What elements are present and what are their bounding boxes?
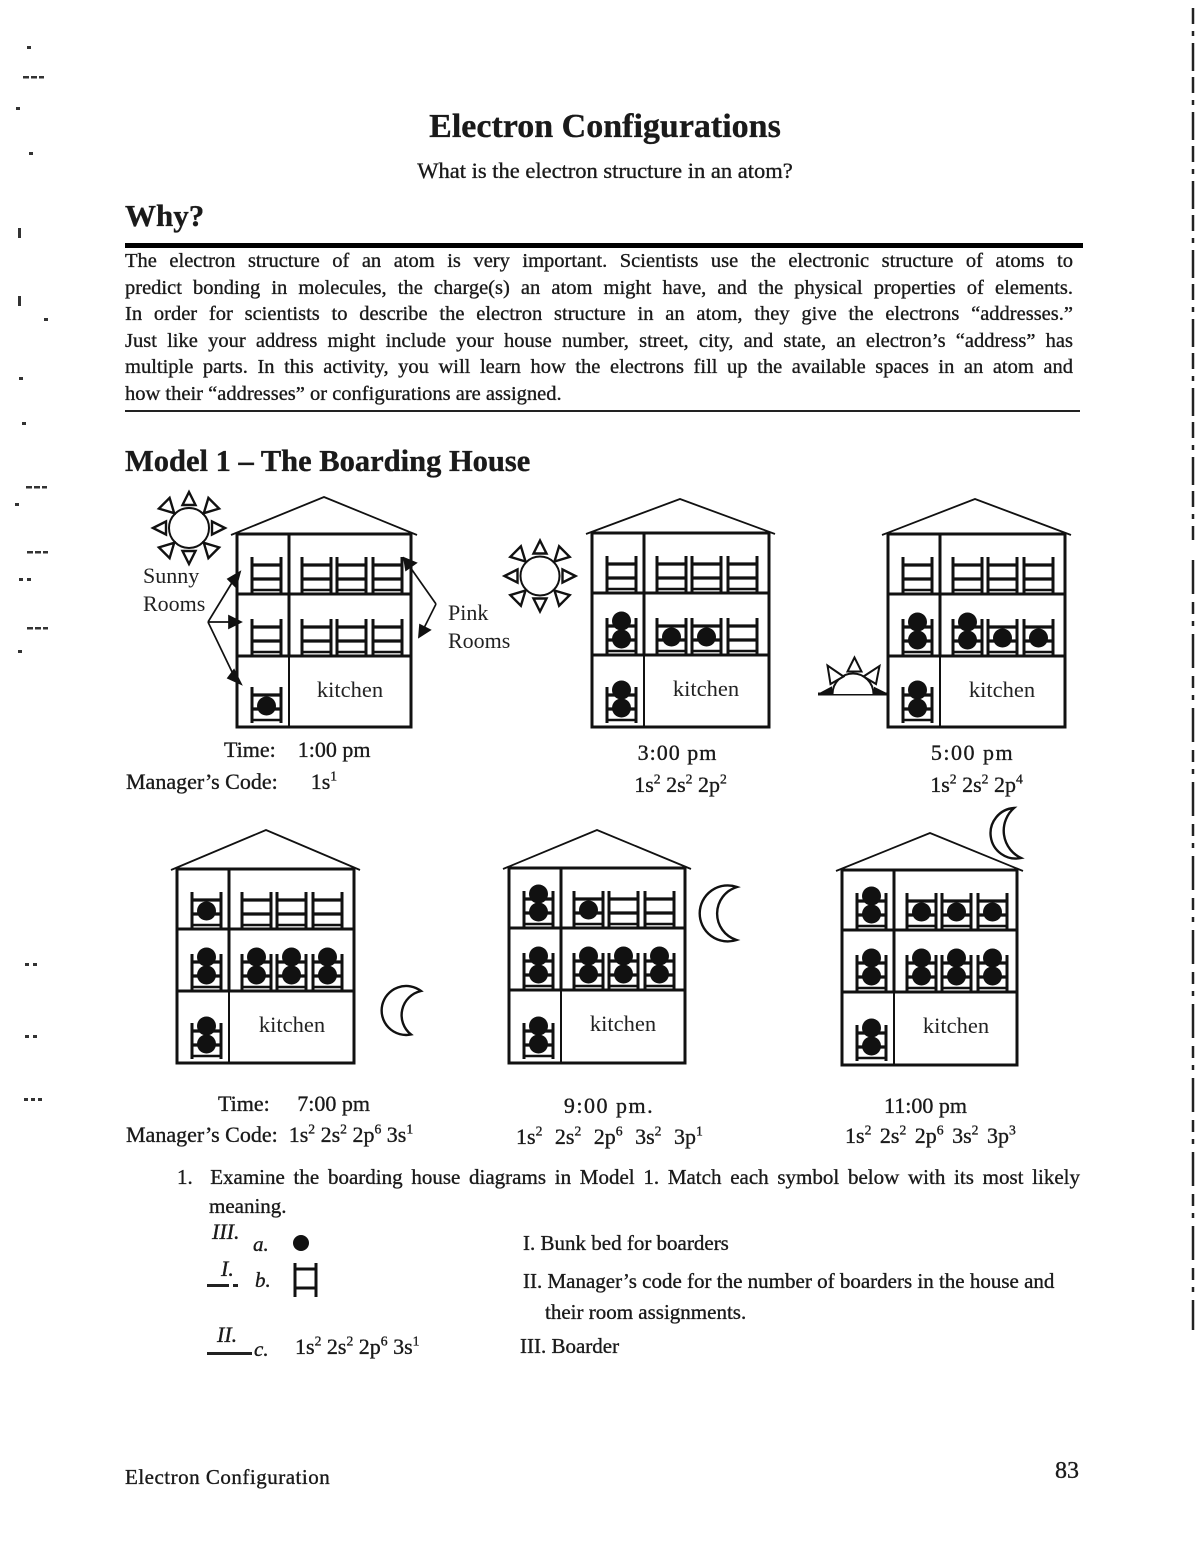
svg-text:Pink: Pink <box>448 600 488 625</box>
svg-text:kitchen: kitchen <box>923 1013 989 1038</box>
svg-text:Sunny: Sunny <box>143 563 199 588</box>
svg-text:Rooms: Rooms <box>143 591 205 616</box>
svg-text:kitchen: kitchen <box>673 676 739 701</box>
svg-text:kitchen: kitchen <box>969 677 1035 702</box>
svg-text:Rooms: Rooms <box>448 628 510 653</box>
svg-text:kitchen: kitchen <box>259 1012 325 1037</box>
svg-text:kitchen: kitchen <box>317 677 383 702</box>
svg-text:kitchen: kitchen <box>590 1011 656 1036</box>
